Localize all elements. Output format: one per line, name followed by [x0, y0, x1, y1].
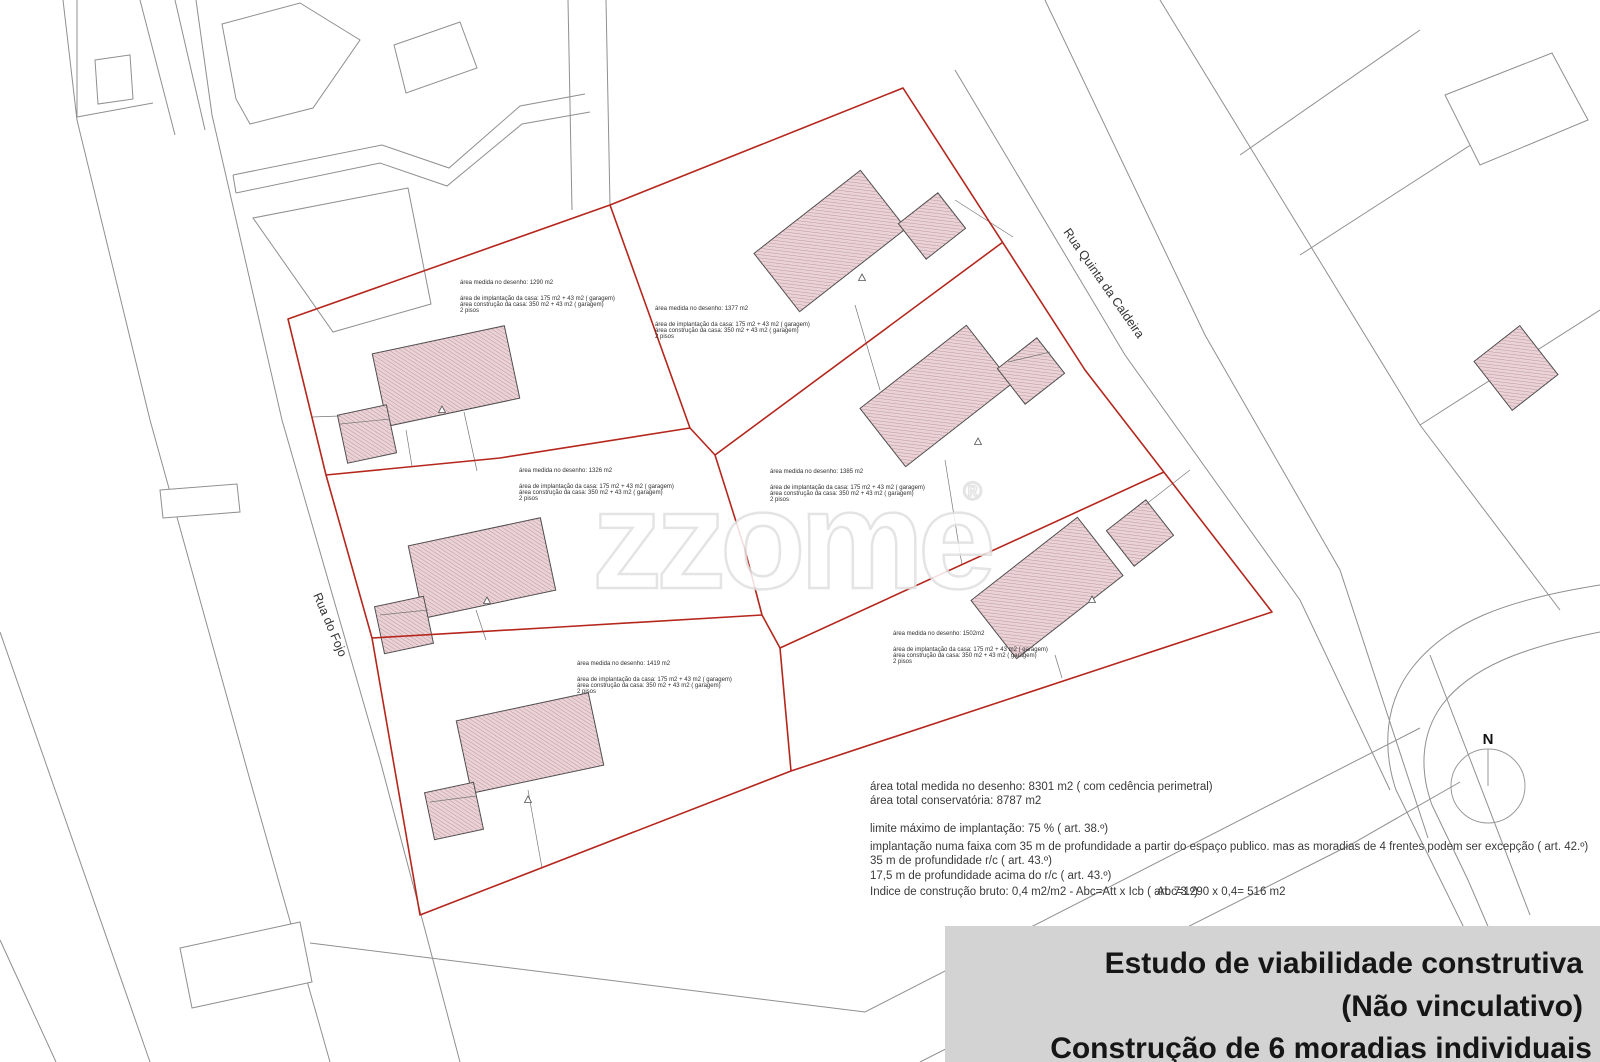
lot2-annotation: área medida no desenho: 1377 m2 área de … — [655, 306, 810, 340]
lot1-annotation: área medida no desenho: 1290 m2 área de … — [460, 280, 615, 314]
lot-area-text: área medida no desenho: 1419 m2 — [577, 661, 671, 667]
title-line1: Estudo de viabilidade construtiva — [1105, 947, 1584, 980]
lot-area-text: área medida no desenho: 1290 m2 — [460, 280, 554, 286]
lot4-garage — [997, 338, 1064, 404]
lot-area-text: área medida no desenho: 1502m2 — [893, 631, 985, 637]
summary-profundidade-acima: 17,5 m de profundidade acima do r/c ( ar… — [870, 870, 1112, 882]
divider-lot3-lot5 — [372, 615, 762, 638]
lot-area-text: área medida no desenho: 1385 m2 — [770, 469, 864, 475]
street-label-caldeira: Rua Quinta da Caldeira — [1061, 226, 1147, 341]
summary-limite: limite máximo de implantação: 75 % ( art… — [870, 823, 1108, 835]
summary-block: área total medida no desenho: 8301 m2 ( … — [870, 781, 1588, 898]
north-arrow: N — [1451, 731, 1525, 823]
title-block: Estudo de viabilidade construtiva (Não v… — [945, 926, 1600, 1062]
road-curve-inner — [1424, 632, 1600, 945]
street-label-fojo: Rua do Fojo — [310, 591, 350, 659]
summary-abc: Abc=1290 x 0,4= 516 m2 — [1157, 886, 1286, 898]
lot2-house — [754, 170, 906, 311]
road-caldeira-left-edge — [955, 70, 1390, 790]
lot-area-text: área medida no desenho: 1326 m2 — [519, 468, 613, 474]
lot-pisos-text: 2 pisos — [460, 308, 479, 314]
lot5-house — [456, 693, 603, 793]
building-outline — [253, 188, 431, 332]
parcel-line — [140, 0, 175, 135]
lot-pisos-text: 2 pisos — [893, 659, 912, 665]
lot1-garage — [337, 405, 396, 463]
building-outline — [222, 3, 360, 124]
summary-profundidade-rc: 35 m de profundidade r/c ( art. 43.º) — [870, 855, 1052, 867]
parcel-line — [0, 632, 150, 1062]
north-label: N — [1483, 731, 1494, 748]
lot-construcao-text: área construção da casa: 350 m2 + 43 m2 … — [893, 653, 1037, 659]
building-outline — [180, 922, 312, 1008]
lot-construcao-text: área construção da casa: 350 m2 + 43 m2 … — [655, 328, 799, 334]
building-outline — [160, 484, 240, 518]
lot4-house — [860, 325, 1012, 466]
building-outline — [394, 22, 477, 93]
lot-construcao-text: área construção da casa: 350 m2 + 43 m2 … — [460, 302, 604, 308]
summary-total-conservatoria: área total conservatória: 8787 m2 — [870, 795, 1041, 807]
lot6-garage — [1106, 500, 1173, 566]
lot-pisos-text: 2 pisos — [770, 497, 789, 503]
parcel-line — [0, 940, 56, 1062]
parcel-line — [1430, 655, 1530, 915]
lot5-annotation: área medida no desenho: 1419 m2 área de … — [577, 661, 732, 695]
road-fojo-left-edge — [63, 0, 330, 1062]
path-lower-edge — [236, 112, 590, 193]
building-outline — [95, 55, 133, 104]
lot3-house — [408, 518, 555, 618]
corridor-left — [568, 0, 572, 210]
path-end — [233, 175, 236, 193]
lot-construcao-text: área construção da casa: 350 m2 + 43 m2 … — [519, 490, 663, 496]
summary-faixa: implantação numa faixa com 35 m de profu… — [870, 841, 1588, 853]
title-line3: Construção de 6 moradias individuais — [1050, 1032, 1592, 1062]
summary-indice: Indice de construção bruto: 0,4 m2/m2 - … — [870, 886, 1198, 898]
parcel-line — [175, 0, 205, 130]
watermark-registered-icon: ® — [963, 476, 982, 506]
corridor-right — [606, 0, 610, 205]
site-plan-page: zzome ® área medida no desenho: 1290 m2 … — [0, 0, 1600, 1062]
lot1-house — [372, 326, 519, 426]
title-line2: (Não vinculativo) — [1341, 990, 1583, 1023]
lot-area-text: área medida no desenho: 1377 m2 — [655, 306, 749, 312]
lot-construcao-text: área construção da casa: 350 m2 + 43 m2 … — [577, 683, 721, 689]
lot5-garage — [425, 782, 484, 839]
lot2-garage — [898, 193, 965, 259]
lot3-garage — [375, 596, 434, 653]
lot-pisos-text: 2 pisos — [655, 334, 674, 340]
road-curve-outer — [1388, 585, 1600, 940]
site-plan-drawing: zzome ® área medida no desenho: 1290 m2 … — [0, 0, 1600, 1062]
road-fojo-right-edge — [196, 0, 460, 1062]
summary-total-desenho: área total medida no desenho: 8301 m2 ( … — [870, 781, 1213, 793]
lot-pisos-text: 2 pisos — [577, 689, 596, 695]
lot6-house — [971, 517, 1123, 658]
existing-hatched-building — [1474, 326, 1558, 411]
lot-pisos-text: 2 pisos — [519, 496, 538, 502]
parcel-line — [1240, 30, 1420, 155]
lot-construcao-text: área construção da casa: 350 m2 + 43 m2 … — [770, 491, 914, 497]
